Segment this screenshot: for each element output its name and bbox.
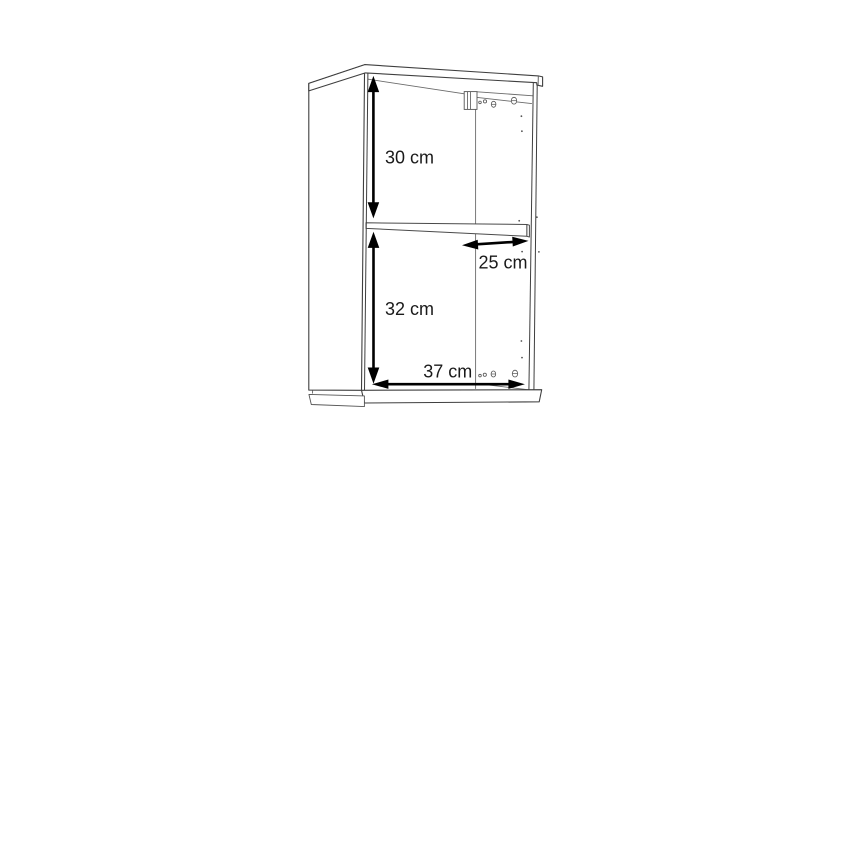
drill-holes-top [479, 97, 517, 107]
left-panel-inner-front-edge [365, 73, 368, 390]
dim-label-30cm: 30 cm [385, 148, 434, 168]
dim-arrow-30cm [368, 76, 380, 219]
ceiling-back-junction-line [368, 79, 464, 94]
dim-label-37cm: 37 cm [423, 362, 472, 382]
drill-holes-bottom [479, 370, 518, 377]
dim-label-25cm: 25 cm [479, 252, 528, 272]
dim-label-32cm: 32 cm [385, 299, 434, 319]
page: 30 cm 25 cm 32 cm 37 cm [0, 0, 868, 868]
bottom-panel [309, 390, 542, 407]
ceiling-right-junction-line [477, 92, 533, 96]
middle-shelf [366, 223, 529, 237]
dim-arrow-32cm [368, 232, 380, 384]
right-side-panel-front-edge [529, 83, 537, 392]
cabinet-drawing: 30 cm 25 cm 32 cm 37 cm [0, 0, 868, 868]
dim-arrow-25cm [462, 237, 529, 250]
left-side-panel [309, 65, 365, 391]
wall-mounting-bracket-icon [464, 92, 477, 110]
